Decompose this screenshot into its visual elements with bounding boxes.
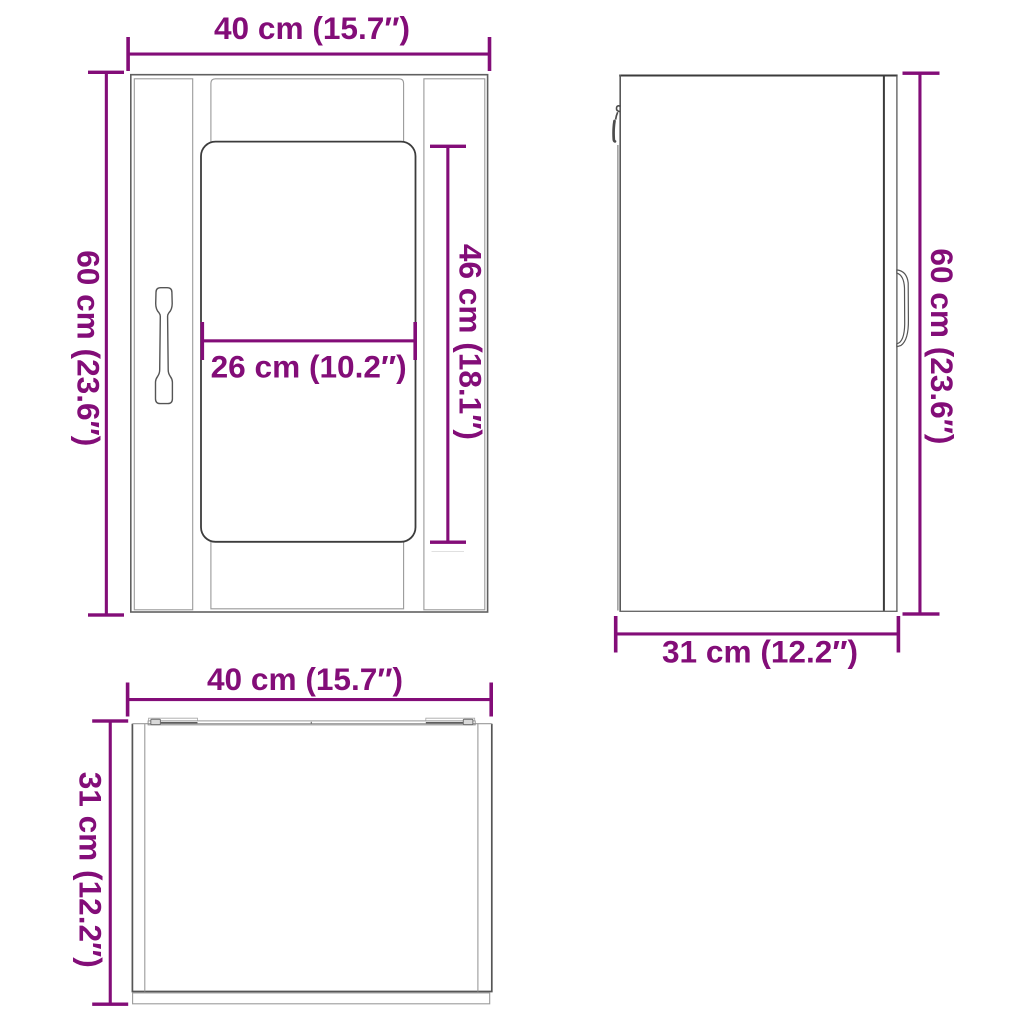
svg-text:31 cm (12.2″): 31 cm (12.2″) bbox=[662, 634, 858, 670]
svg-text:40 cm (15.7″): 40 cm (15.7″) bbox=[214, 10, 410, 46]
svg-text:26 cm (10.2″): 26 cm (10.2″) bbox=[211, 349, 407, 385]
svg-text:40 cm (15.7″): 40 cm (15.7″) bbox=[207, 661, 403, 697]
svg-text:60 cm (23.6″): 60 cm (23.6″) bbox=[924, 248, 960, 444]
svg-text:46 cm (18.1″): 46 cm (18.1″) bbox=[452, 244, 488, 440]
svg-text:31 cm (12.2″): 31 cm (12.2″) bbox=[73, 772, 109, 968]
svg-text:60 cm (23.6″): 60 cm (23.6″) bbox=[71, 250, 107, 446]
